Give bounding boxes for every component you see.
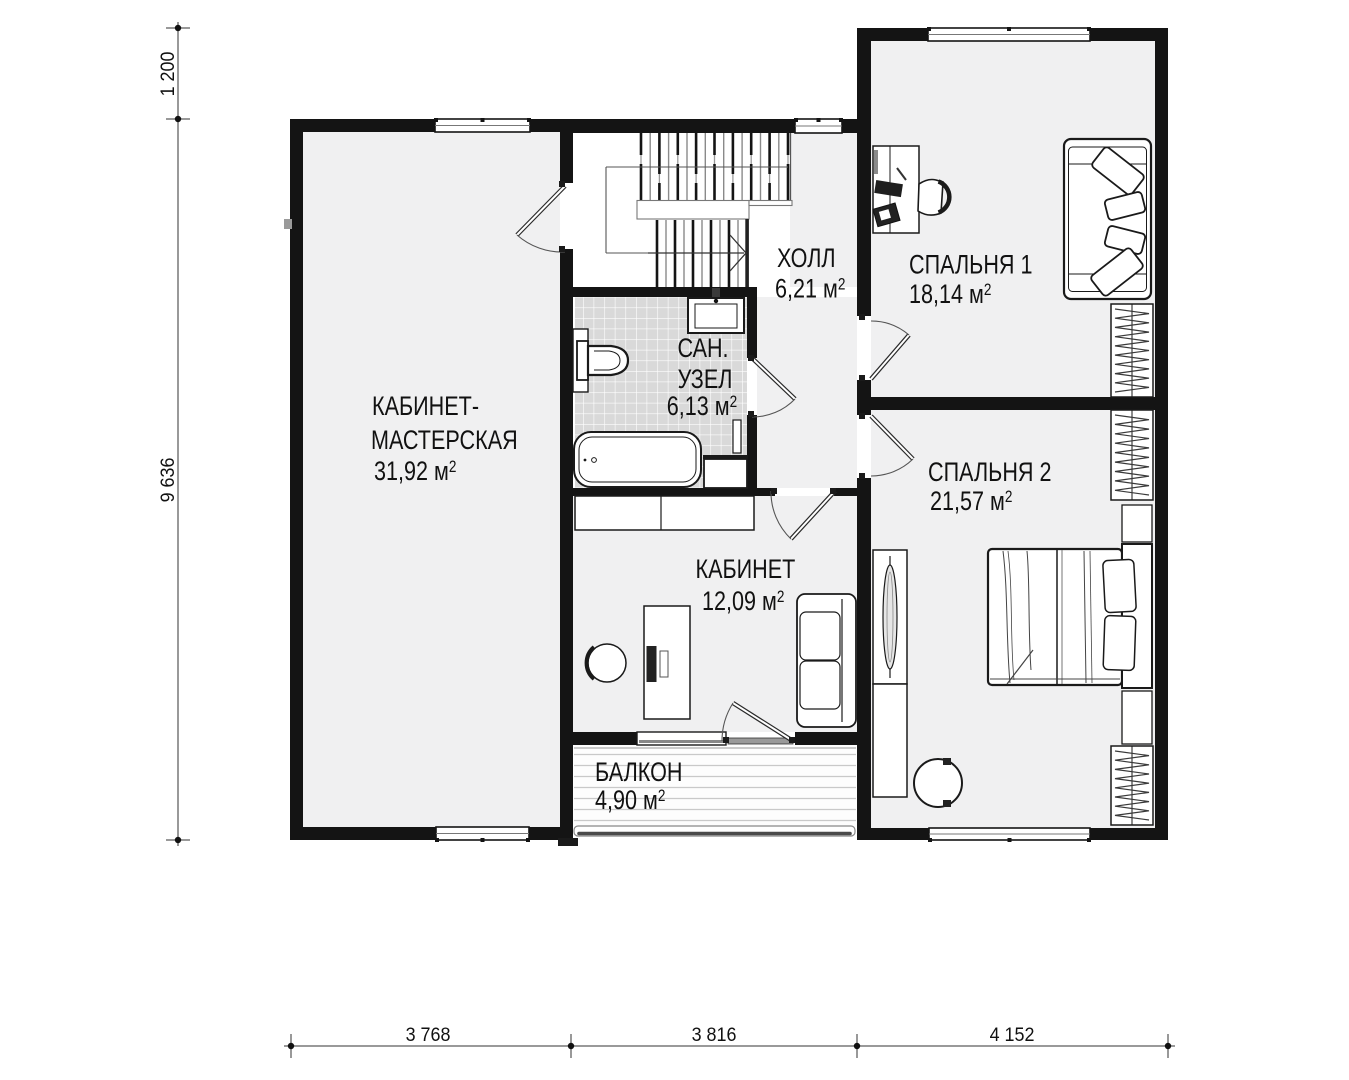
svg-text:СПАЛЬНЯ 1: СПАЛЬНЯ 1 [909,250,1033,280]
svg-text:3 768: 3 768 [406,1023,451,1045]
svg-text:31,92 м2: 31,92 м2 [374,457,456,487]
svg-text:12,09 м2: 12,09 м2 [702,587,784,617]
svg-text:МАСТЕРСКАЯ: МАСТЕРСКАЯ [371,426,518,456]
svg-text:4 152: 4 152 [990,1023,1035,1045]
svg-text:4,90 м2: 4,90 м2 [595,786,665,816]
svg-text:БАЛКОН: БАЛКОН [595,758,682,788]
svg-text:6,13 м2: 6,13 м2 [667,392,737,422]
svg-text:ХОЛЛ: ХОЛЛ [777,244,836,274]
svg-text:9 636: 9 636 [156,458,178,503]
svg-text:1 200: 1 200 [156,52,178,97]
svg-text:КАБИНЕТ-: КАБИНЕТ- [372,392,479,422]
svg-text:3 816: 3 816 [692,1023,737,1045]
svg-text:21,57 м2: 21,57 м2 [930,487,1012,517]
svg-text:КАБИНЕТ: КАБИНЕТ [696,555,796,585]
svg-text:УЗЕЛ: УЗЕЛ [678,365,733,395]
svg-text:САН.: САН. [677,334,728,364]
svg-text:18,14 м2: 18,14 м2 [909,280,991,310]
svg-text:6,21 м2: 6,21 м2 [775,274,845,304]
svg-text:СПАЛЬНЯ 2: СПАЛЬНЯ 2 [928,458,1052,488]
